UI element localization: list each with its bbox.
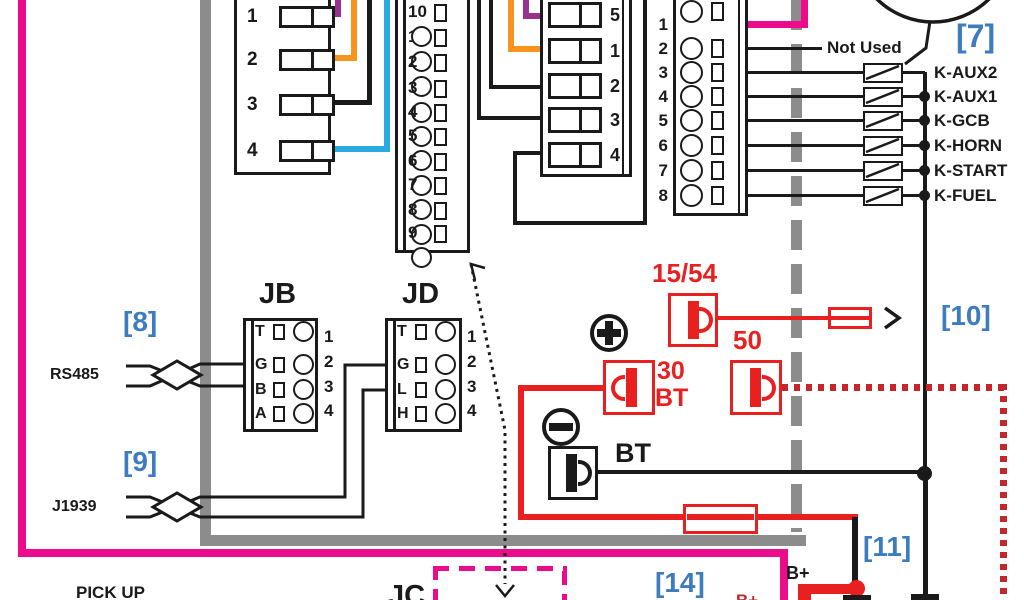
circle-to-relay-line xyxy=(905,21,930,64)
dotted-arrow xyxy=(471,264,514,596)
twisted-pair-j1939-icon xyxy=(126,365,385,521)
arrow-right-icon xyxy=(885,308,899,328)
diagram-lines-overlay xyxy=(0,0,1024,600)
device-circle xyxy=(853,0,1013,22)
twisted-pair-rs485-icon xyxy=(126,361,244,389)
wiring-diagram-canvas: 1 2 3 4 1 2 3 4 5 6 7 8 9 10 1 2 3 xyxy=(0,0,1024,600)
